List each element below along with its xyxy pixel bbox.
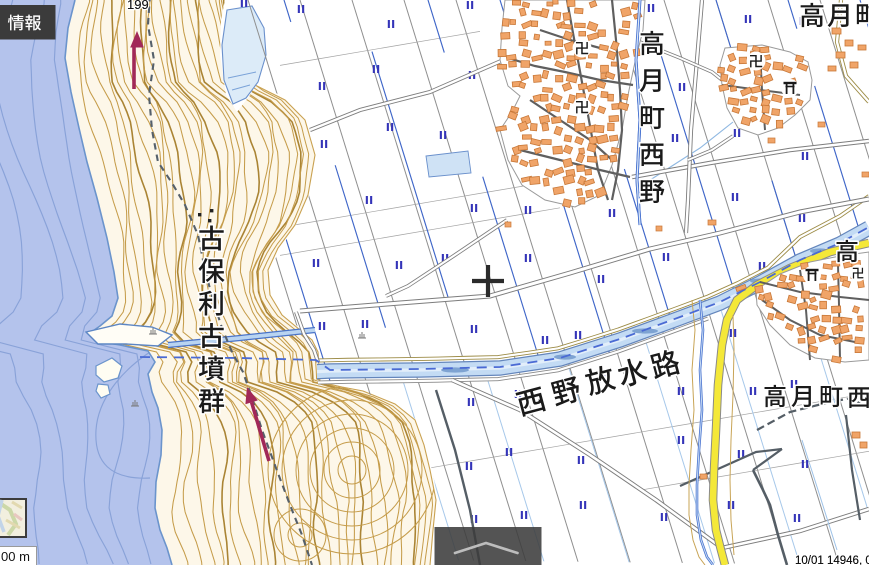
svg-text:00 m: 00 m xyxy=(1,549,30,564)
svg-text:199: 199 xyxy=(127,0,149,12)
svg-text:10/01 14946, 0: 10/01 14946, 0 xyxy=(795,555,869,565)
